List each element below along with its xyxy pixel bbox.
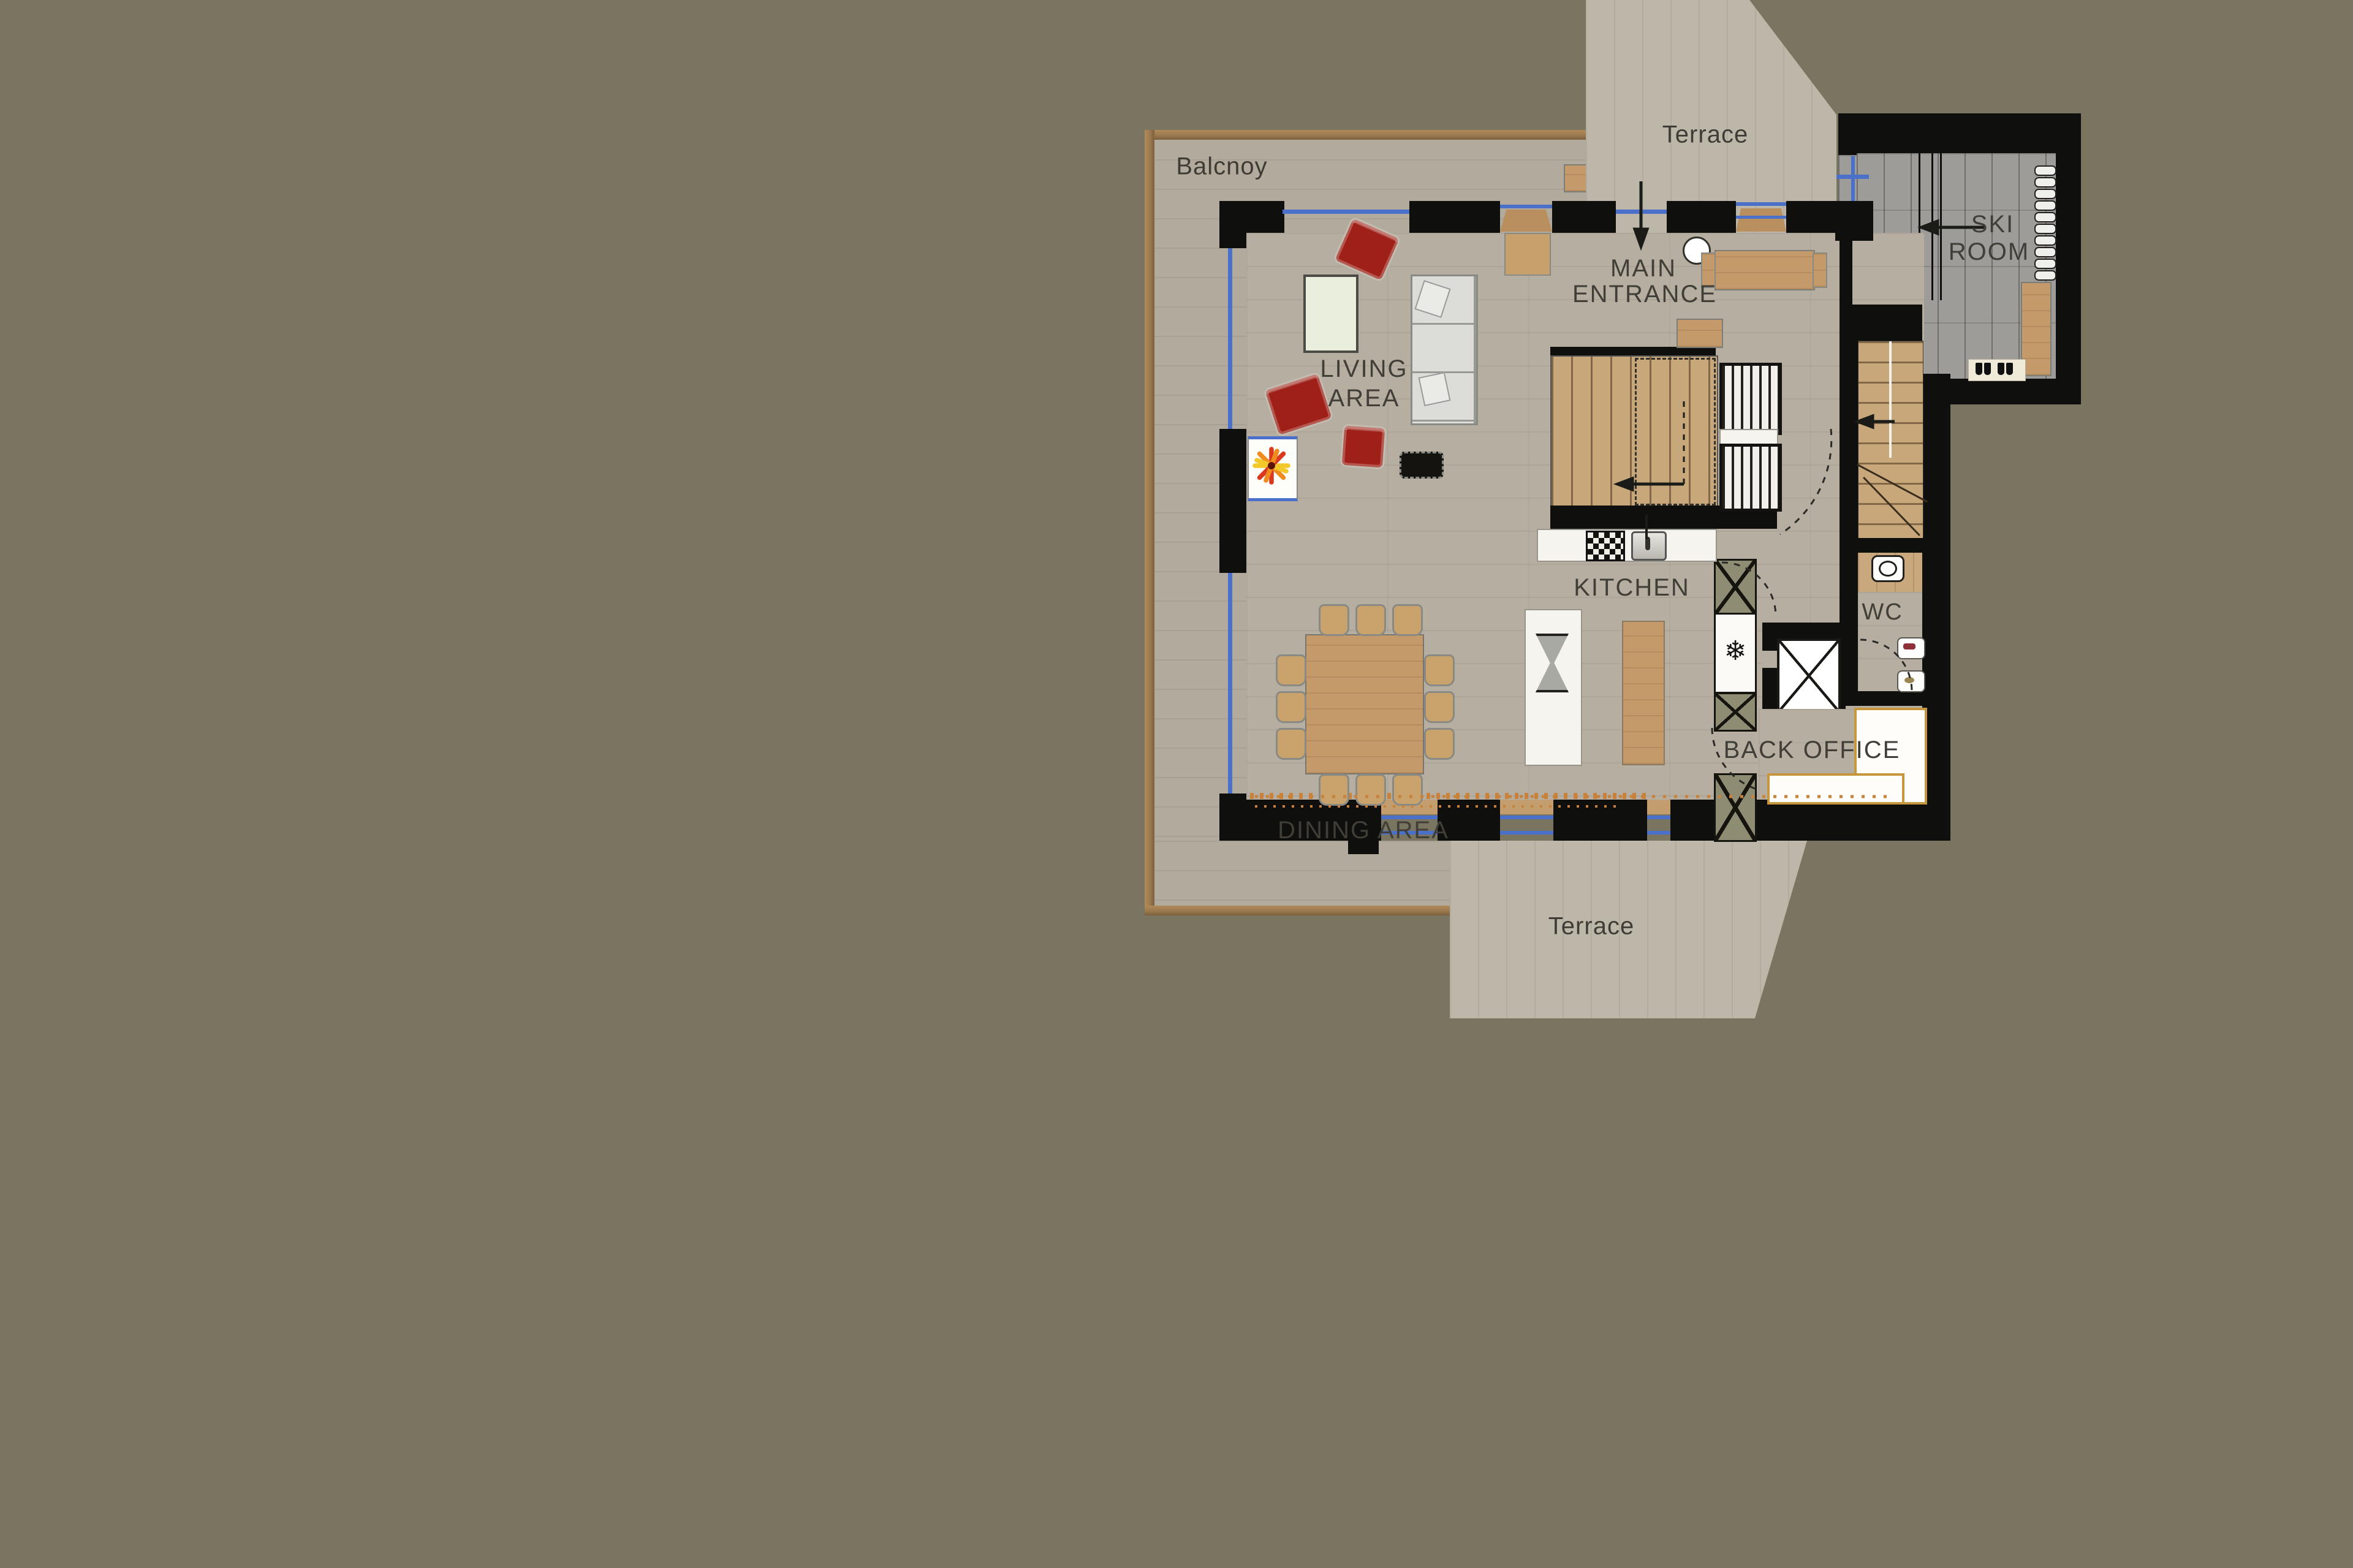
fireplace — [1248, 436, 1298, 501]
cabinet-icon — [1714, 773, 1757, 842]
dining-chair — [1392, 604, 1423, 636]
dining-chair — [1276, 654, 1306, 686]
toilet-icon — [1871, 555, 1904, 582]
living-area-label-1: LIVING — [1320, 355, 1408, 382]
kitchen-label: KITCHEN — [1574, 574, 1690, 601]
stove-icon — [1586, 531, 1625, 561]
dining-chair — [1276, 728, 1306, 760]
window-left-2 — [1228, 573, 1232, 793]
entrance-side-table — [1813, 252, 1827, 288]
balcony-label: Balcnoy — [1176, 153, 1267, 181]
winder-line-2 — [1863, 477, 1920, 536]
elevator-door-gap — [1762, 651, 1777, 668]
ski-boot-icon — [1998, 363, 2004, 375]
wall-top-2 — [1409, 201, 1500, 233]
ski-door-marker-v — [1851, 156, 1855, 202]
balcony-door-leaf — [1500, 210, 1552, 232]
ski-rack-icon — [2034, 177, 2056, 187]
ski-rack-icon — [2034, 235, 2056, 246]
ski-boot-icon — [1984, 363, 1991, 375]
stairs-upper-edge — [1550, 347, 1716, 355]
balcony-trim-left — [1145, 130, 1154, 915]
entrance-door-glass-2 — [1736, 216, 1786, 219]
dining-chair — [1424, 654, 1455, 686]
kitchen-sink — [1631, 531, 1667, 561]
flame-icon — [1251, 445, 1292, 486]
stair-top-shelf — [1677, 319, 1723, 348]
kitchen-counter — [1537, 529, 1717, 562]
pantry-shelving-1 — [1719, 363, 1782, 435]
cabinet-icon — [1714, 559, 1757, 615]
sofa-pillow — [1414, 280, 1450, 318]
wall-ski-partition — [1840, 201, 1852, 305]
ski-door-marker-h — [1836, 175, 1869, 179]
ski-rack-icon — [2034, 247, 2056, 257]
wall-top-5 — [1786, 201, 1841, 233]
armchair-red — [1340, 424, 1387, 470]
kitchen-wood-counter — [1622, 621, 1665, 765]
balcony-trim-top — [1145, 130, 1601, 140]
entrance-door-leaf — [1736, 208, 1786, 232]
dining-chair — [1392, 774, 1423, 806]
ski-boot-icon — [1976, 363, 1982, 375]
kitchen-island — [1525, 609, 1582, 766]
terrace-top-label: Terrace — [1662, 121, 1748, 149]
window-bottom-2a — [1500, 816, 1553, 819]
window-sill-3 — [1647, 800, 1670, 814]
elevator-car — [1777, 638, 1841, 713]
dining-chair — [1319, 774, 1349, 806]
wall-left-mid — [1219, 429, 1246, 573]
ski-room-label-2: ROOM — [1949, 238, 2029, 265]
dining-chair — [1355, 604, 1386, 636]
stairwell-stairs — [1858, 341, 1923, 539]
dining-chair — [1276, 691, 1306, 723]
ski-rack-icon — [2034, 212, 2056, 222]
island-sink-icon — [1536, 634, 1569, 692]
back-office-label: BACK OFFICE — [1724, 737, 1901, 763]
main-entrance-label-1: MAIN — [1610, 255, 1677, 282]
sofa — [1411, 275, 1478, 425]
coffee-table — [1400, 452, 1444, 479]
living-area-label-2: AREA — [1328, 385, 1400, 412]
back-office-desk-horizontal — [1767, 773, 1904, 805]
sofa-pillow — [1418, 372, 1450, 406]
wall-bottom-4 — [1670, 800, 1950, 841]
ski-boot-icon — [2006, 363, 2013, 375]
balcony-deck-bottom — [1145, 841, 1452, 907]
dining-chair — [1319, 604, 1349, 636]
dining-table — [1305, 634, 1424, 775]
ski-rack-icon — [2034, 189, 2056, 199]
wall-top-corner-leg — [1219, 201, 1246, 248]
window-sill-2 — [1500, 800, 1553, 814]
ski-door-track-2 — [1931, 153, 1933, 300]
window-bottom-2b — [1500, 831, 1553, 835]
window-top-2 — [1616, 210, 1667, 214]
ski-rack-icon — [2034, 165, 2056, 176]
pantry-shelving-2 — [1719, 444, 1782, 512]
window-bottom-3a — [1647, 816, 1670, 819]
ski-rack-icon — [2034, 224, 2056, 234]
floor-heating-strip — [1250, 793, 1647, 799]
stair-rail — [1889, 341, 1892, 458]
window-left-1 — [1228, 248, 1232, 429]
entrance-door-glass-1 — [1736, 202, 1786, 206]
main-entrance-label-2: ENTRANCE — [1572, 281, 1717, 308]
terrace-bottom-label: Terrace — [1548, 913, 1634, 941]
living-rug — [1303, 275, 1358, 353]
dining-area-label: DINING AREA — [1278, 817, 1449, 844]
wall-top-4 — [1667, 201, 1736, 233]
dining-chair — [1424, 728, 1455, 760]
balcony-trim-bottom — [1145, 906, 1452, 915]
wc-label: WC — [1862, 600, 1903, 626]
floor-plan-page: { "canvas": {"width": 3840, "height": 25… — [0, 0, 2353, 1568]
balcony-door-glass — [1500, 205, 1552, 208]
dining-chair — [1424, 691, 1455, 723]
window-top-1 — [1283, 210, 1409, 214]
wc-sink-2 — [1897, 670, 1925, 692]
ski-room-label-1: SKI — [1971, 211, 2014, 238]
ski-door-track-3 — [1940, 153, 1942, 300]
balcony-door-mat — [1504, 233, 1551, 276]
freezer: ❄ — [1714, 613, 1757, 694]
snowflake-icon: ❄ — [1724, 636, 1747, 666]
wall-top-3 — [1552, 201, 1616, 233]
kitchen-stairs-winder-outline — [1635, 358, 1716, 506]
ski-rack-icon — [2034, 200, 2056, 211]
ski-rack-icon — [2034, 270, 2056, 281]
wall-bottom-3 — [1553, 800, 1647, 841]
window-bottom-3b — [1647, 831, 1670, 835]
entrance-bench — [1715, 250, 1815, 290]
cabinet-icon — [1714, 692, 1757, 732]
dining-chair — [1355, 774, 1386, 806]
ski-rack-icon — [2034, 259, 2056, 269]
wc-sink-1 — [1897, 637, 1925, 659]
